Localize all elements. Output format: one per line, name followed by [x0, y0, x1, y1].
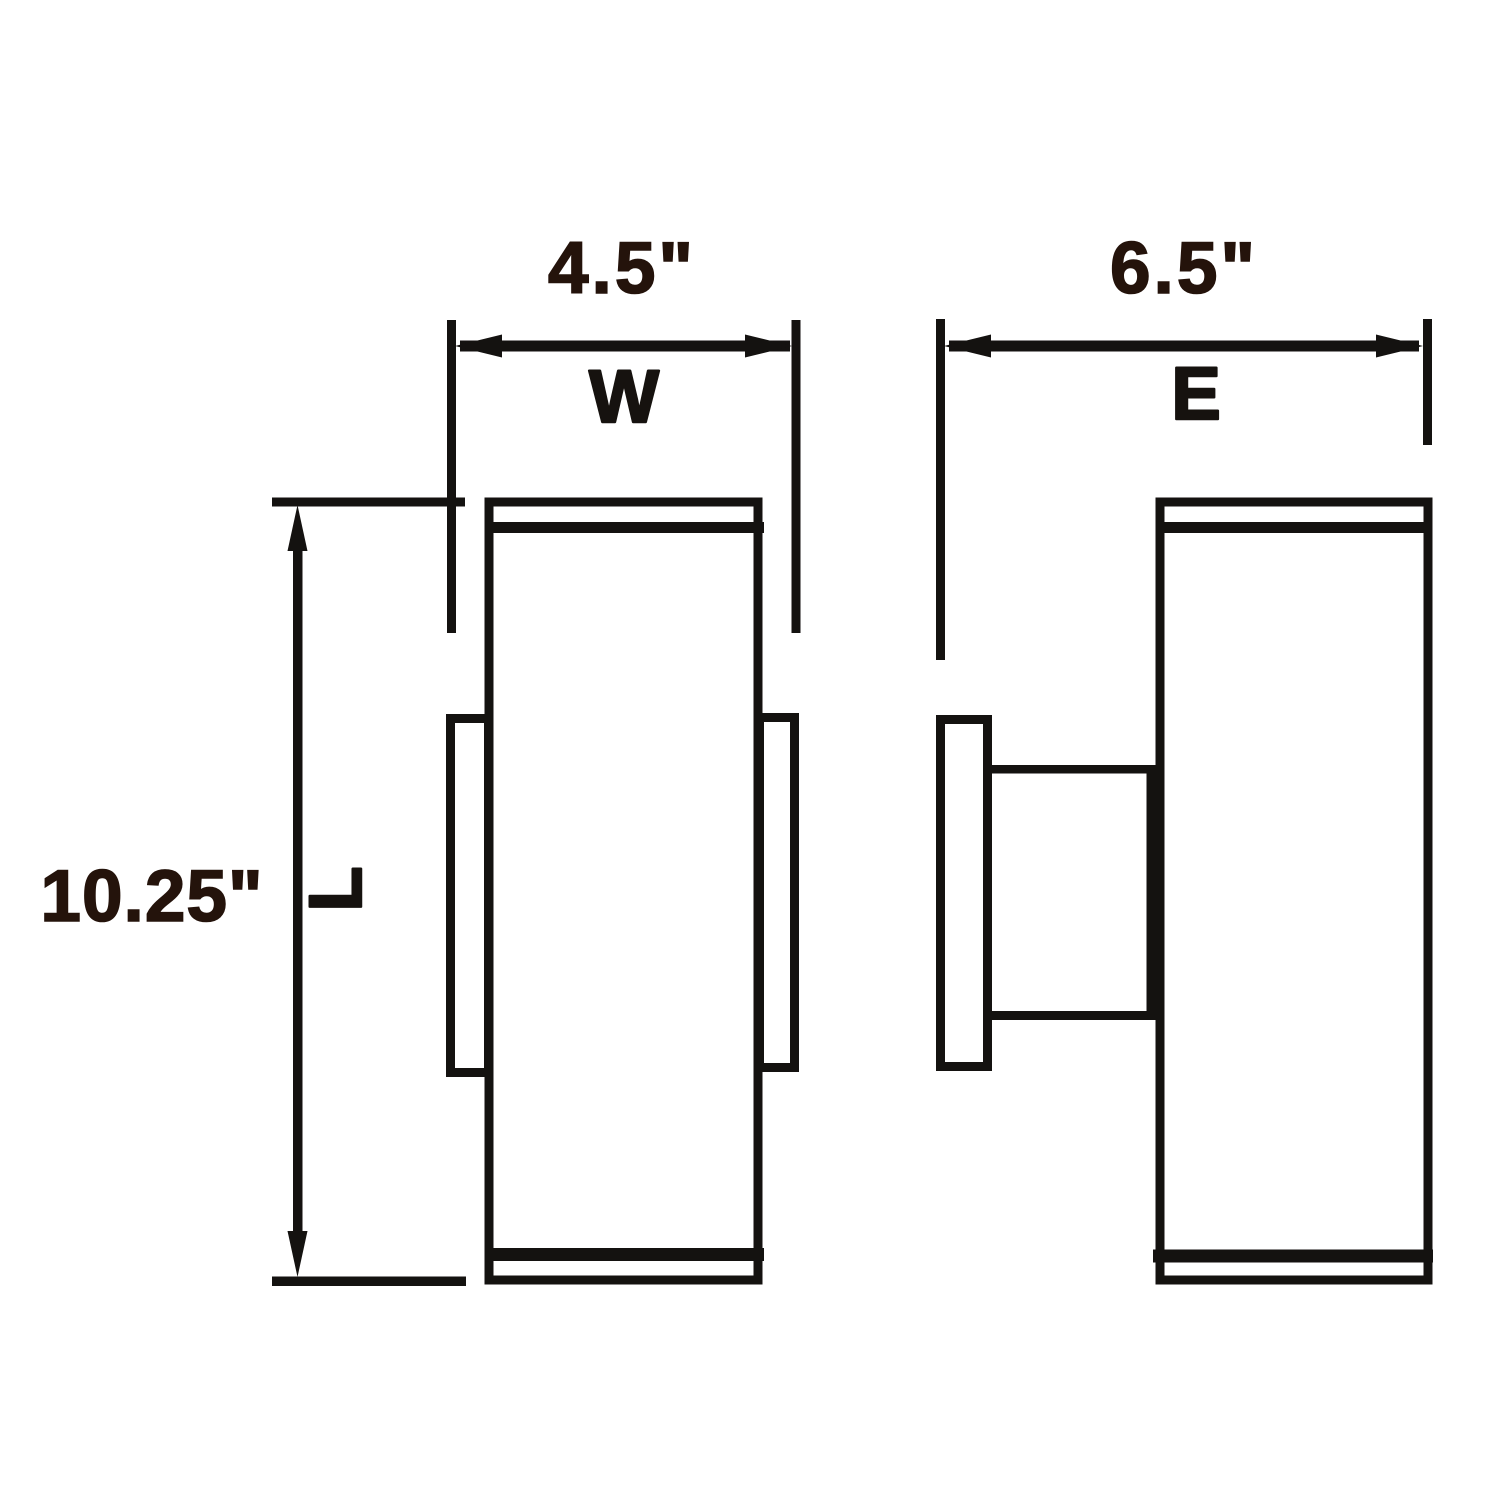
svg-text:10.25": 10.25" [40, 856, 263, 937]
svg-text:E: E [1171, 352, 1220, 435]
svg-text:W: W [589, 355, 659, 438]
svg-text:6.5": 6.5" [1110, 228, 1258, 309]
svg-text:L: L [294, 866, 377, 911]
svg-text:4.5": 4.5" [548, 228, 696, 309]
